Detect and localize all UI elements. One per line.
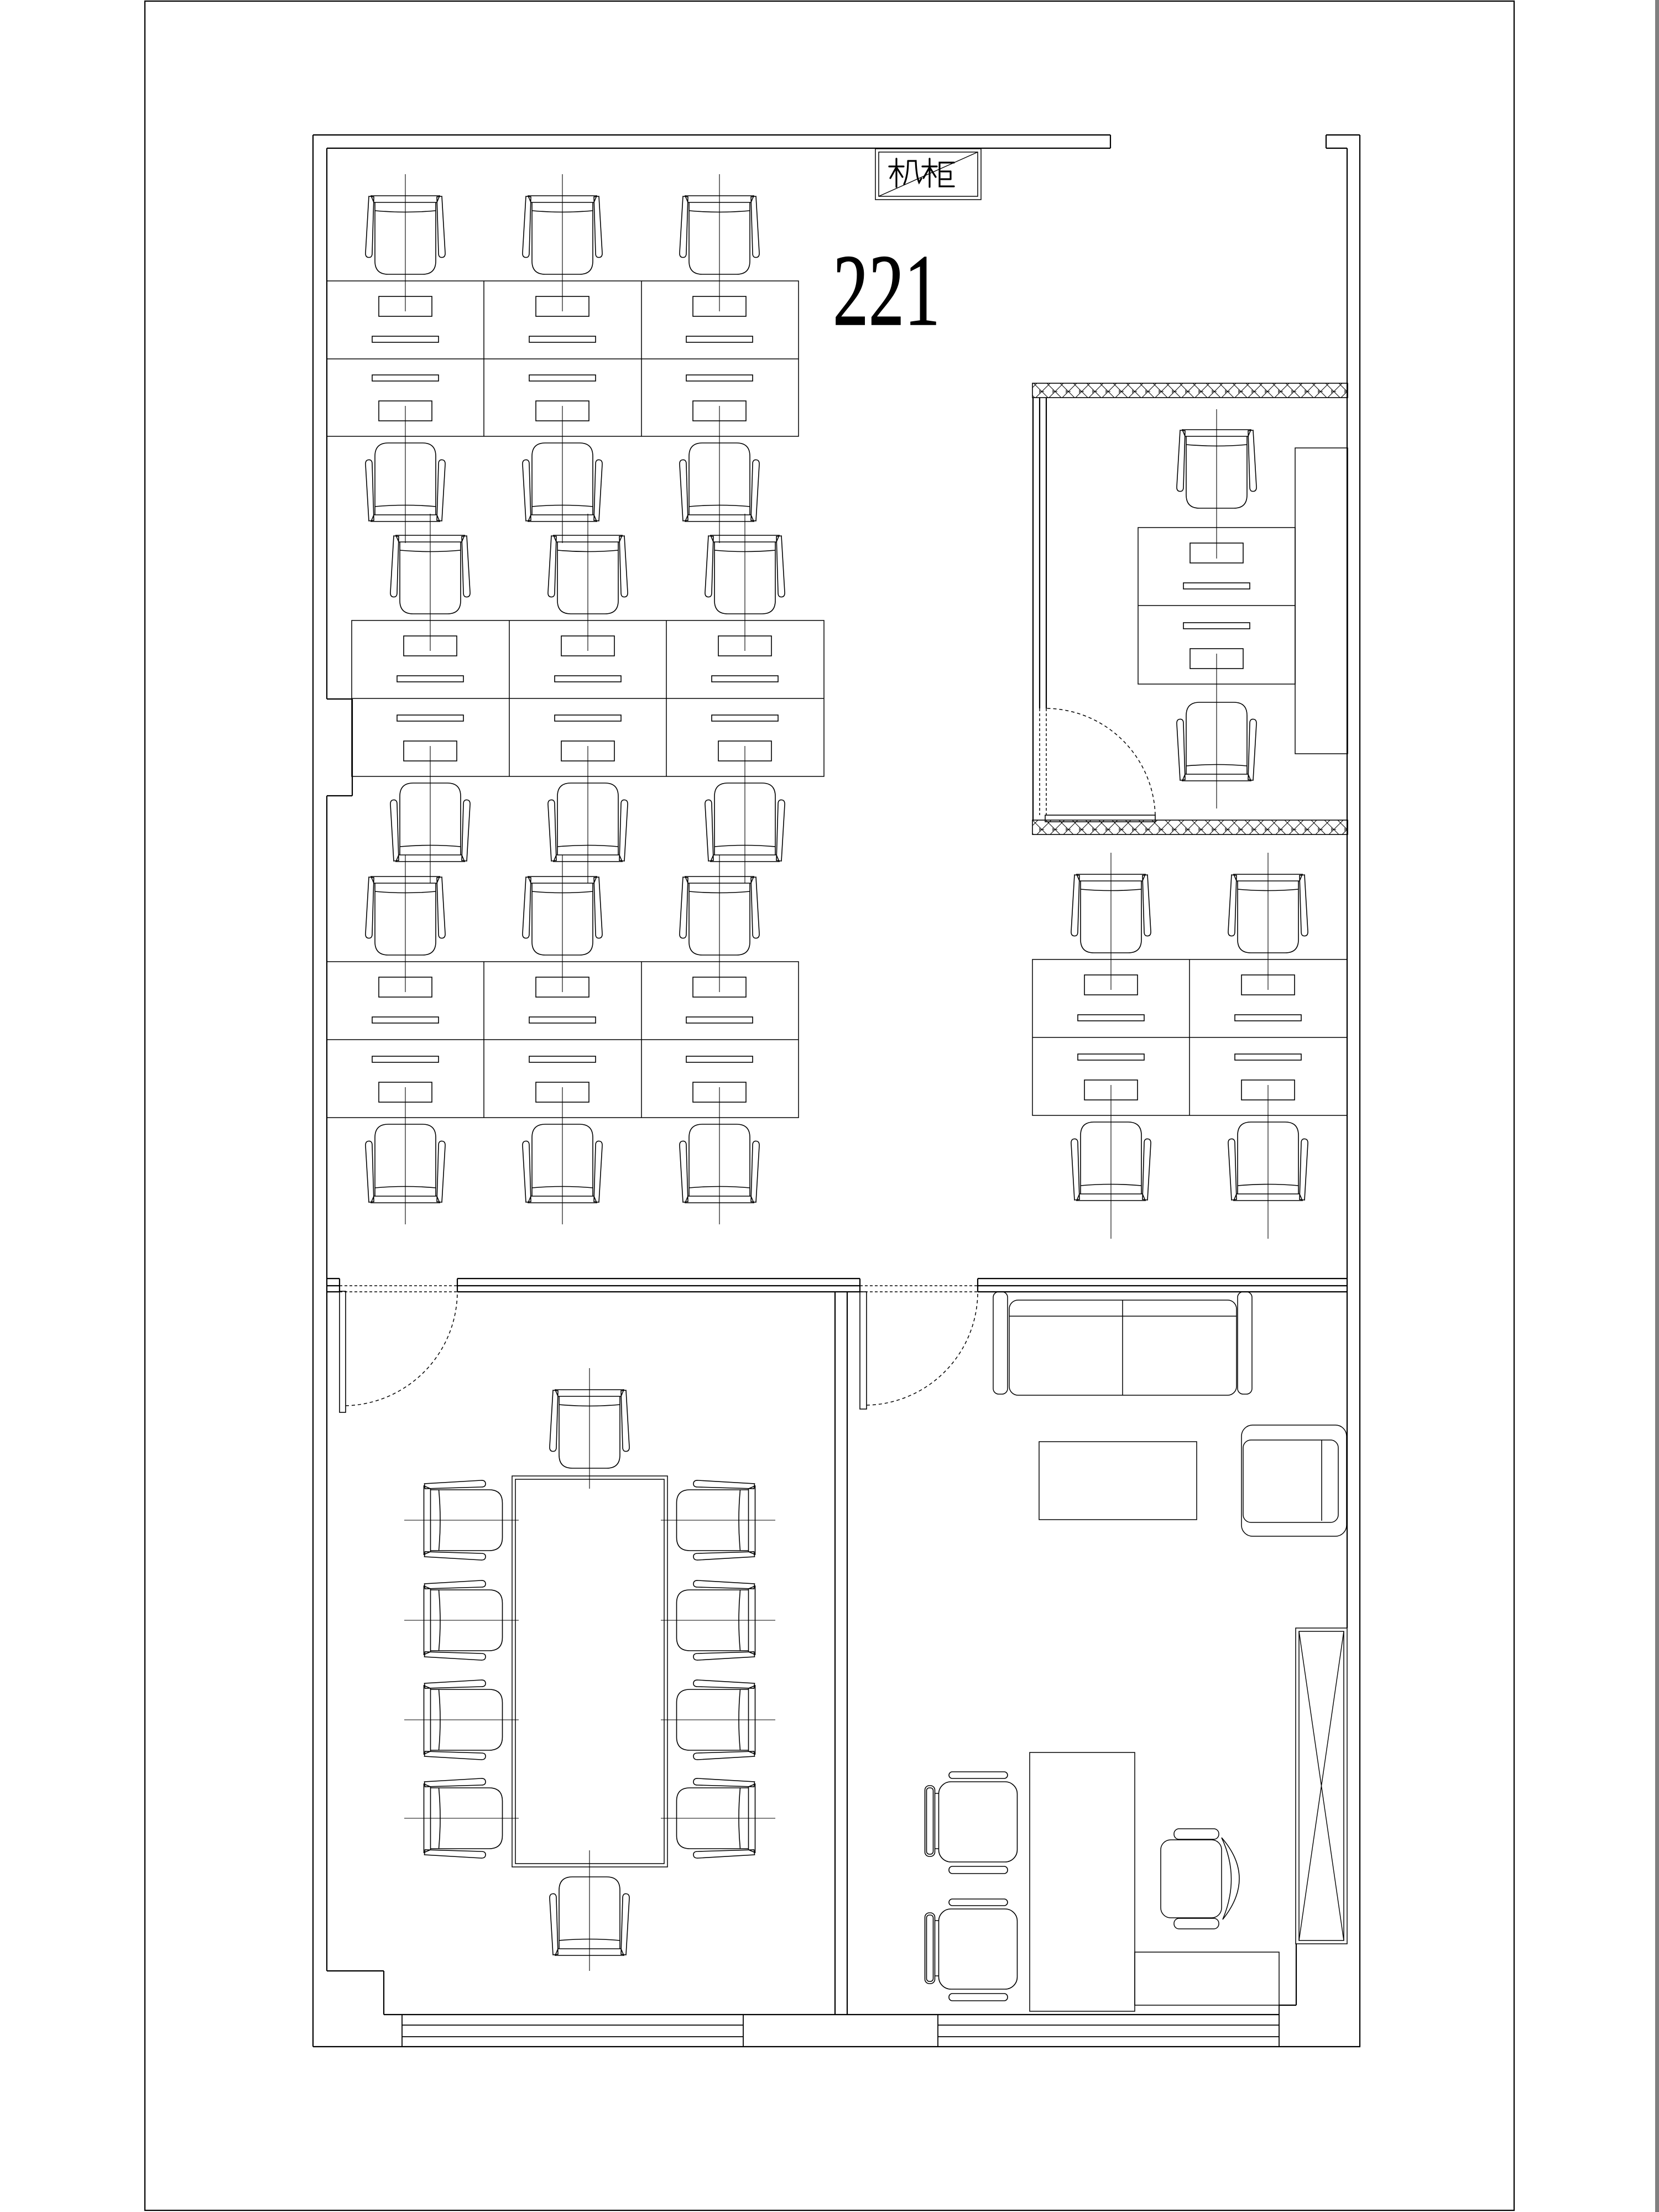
svg-text:221: 221 bbox=[833, 234, 940, 347]
